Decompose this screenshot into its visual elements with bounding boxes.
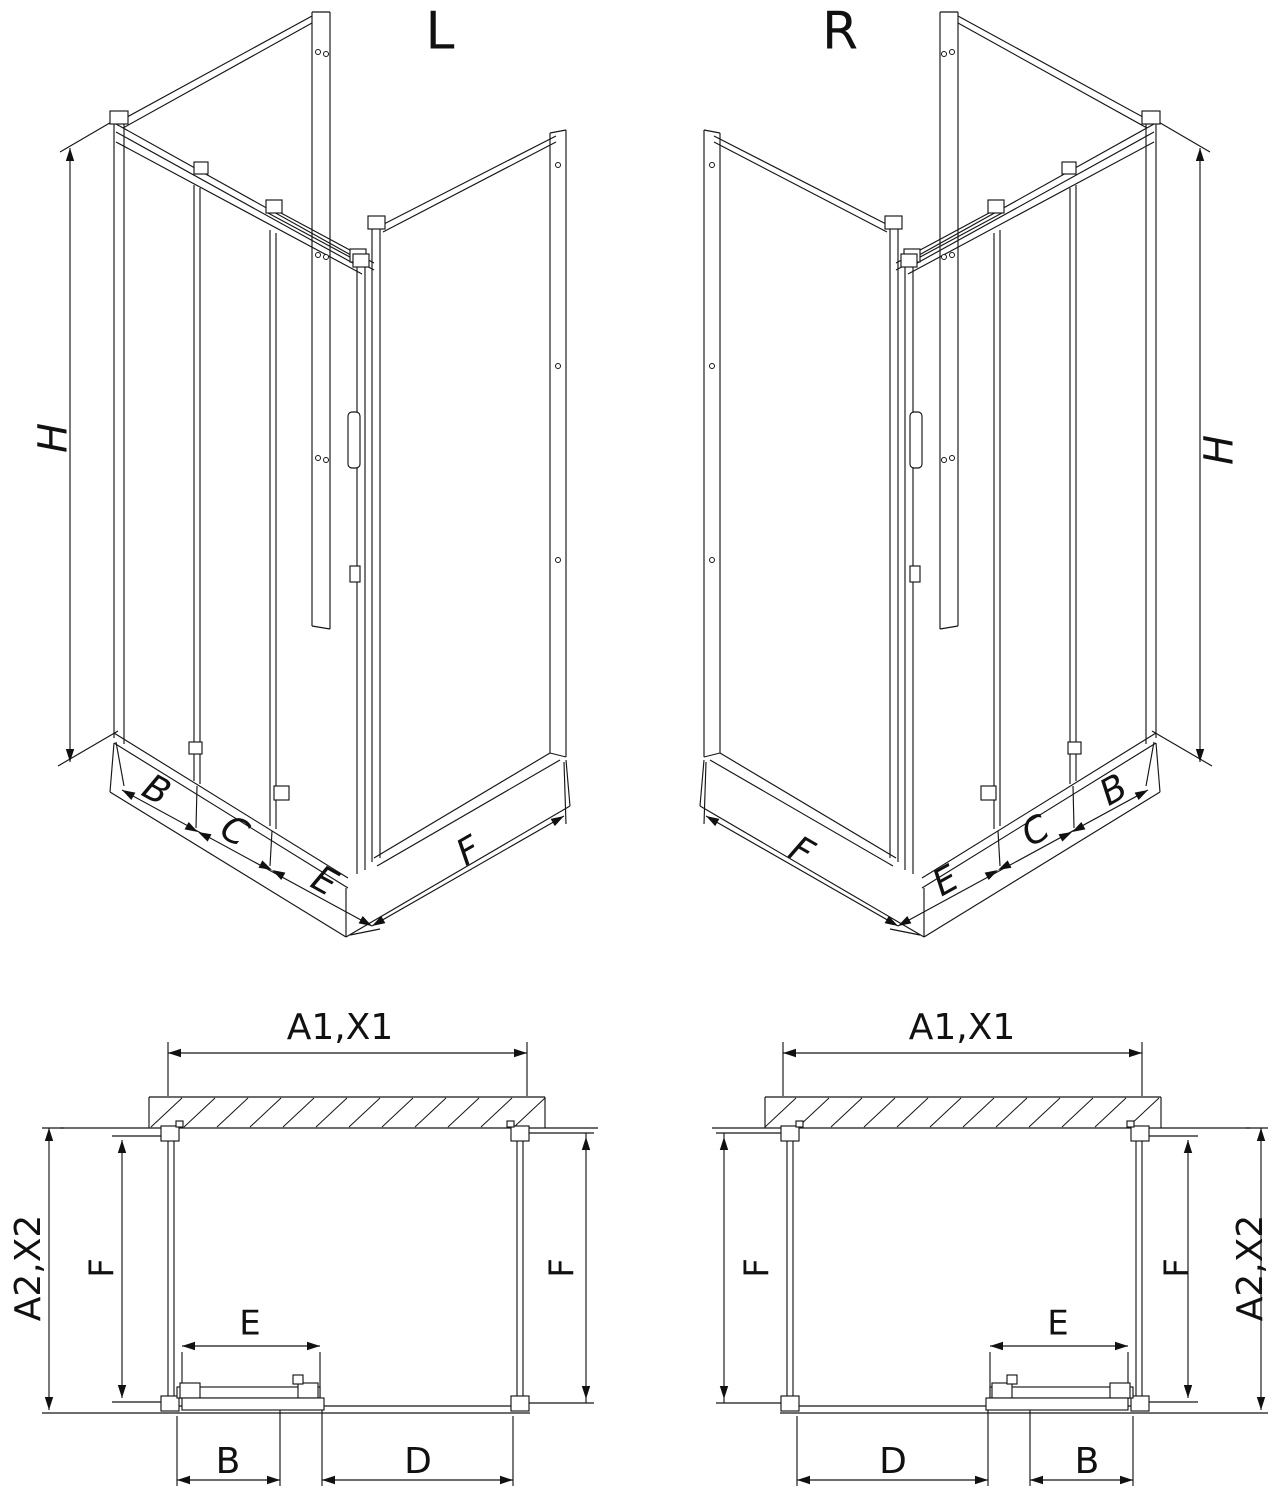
- dim-label-f-left-iso: F: [450, 828, 490, 875]
- wireframe-left-variant: [58, 12, 570, 937]
- dim-label-d-right-plan: D: [879, 1441, 907, 1482]
- technical-drawing-page: L H B C E F R H F E C B A1,X1 A2,X2 F F …: [0, 0, 1288, 1498]
- variant-label-right: R: [822, 2, 858, 62]
- iso-view-right: R H F E C B: [700, 2, 1242, 937]
- shower-enclosure-diagram: L H B C E F R H F E C B A1,X1 A2,X2 F F …: [0, 0, 1288, 1498]
- dim-label-f-right-iso: F: [782, 828, 822, 875]
- plan-wireframe-left: [42, 1042, 598, 1486]
- dim-label-a1x1-right: A1,X1: [909, 1007, 1016, 1048]
- dim-label-f-left-wall-right-plan: F: [737, 1258, 777, 1278]
- dim-label-b-left-iso: B: [136, 766, 177, 814]
- dim-label-b-right-plan: B: [1075, 1441, 1100, 1482]
- dim-label-d-left-plan: D: [404, 1441, 432, 1482]
- dim-label-b-left-plan: B: [216, 1441, 241, 1482]
- variant-label-left: L: [426, 2, 455, 62]
- dim-label-e-left-plan: E: [239, 1303, 260, 1343]
- dim-label-height-left: H: [30, 423, 76, 453]
- plan-view-right: A1,X1 F F A2,X2 E D B: [712, 1007, 1271, 1486]
- wireframe-right-variant: [700, 12, 1212, 937]
- dim-label-e-right-plan: E: [1047, 1303, 1068, 1343]
- dim-label-f-left-wall-left-plan: F: [82, 1258, 122, 1278]
- dim-label-a2x2-left: A2,X2: [8, 1215, 49, 1322]
- dim-label-height-right: H: [1196, 435, 1242, 465]
- dim-label-c-right-iso: C: [1015, 807, 1058, 855]
- dim-label-c-left-iso: C: [213, 807, 256, 855]
- dim-label-b-right-iso: B: [1093, 766, 1134, 814]
- iso-view-left: L H B C E F: [30, 2, 570, 937]
- dim-label-f-right-wall-right-plan: F: [1157, 1258, 1197, 1278]
- dim-label-a1x1-left: A1,X1: [287, 1007, 394, 1048]
- dim-label-f-right-wall-left-plan: F: [542, 1258, 582, 1278]
- dim-label-a2x2-right: A2,X2: [1230, 1215, 1271, 1322]
- plan-view-left: A1,X1 A2,X2 F F E B D: [8, 1007, 598, 1486]
